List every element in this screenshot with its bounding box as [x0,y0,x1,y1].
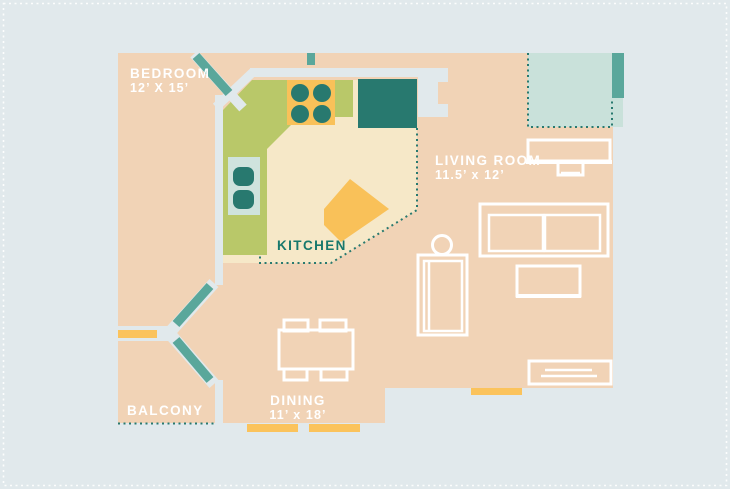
terrace [528,53,623,127]
floor-plan: BEDROOM 12’ X 15’ LIVING ROOM 11.5’ x 12… [0,0,730,489]
wall-kitchen-top [250,68,418,77]
window-dining-1 [247,424,298,432]
bedroom-dims: 12’ X 15’ [130,81,189,95]
bedroom-label: BEDROOM [130,66,210,81]
burner [291,105,309,123]
living-room-dims: 11.5’ x 12’ [435,168,505,182]
window-dining-2 [309,424,360,432]
wall-bedroom-right [215,95,223,285]
front-door [307,53,315,65]
fridge [358,79,417,128]
floor-plan-svg: BEDROOM 12’ X 15’ LIVING ROOM 11.5’ x 12… [0,0,730,489]
kitchen-label: KITCHEN [277,238,347,253]
dining-dims: 11’ x 18’ [269,408,326,422]
balcony-label: BALCONY [127,403,204,418]
window-left [118,330,157,338]
burner [291,84,309,102]
living-room-label: LIVING ROOM [435,153,541,168]
dining-label: DINING [270,393,326,408]
wall-entry-arm-bottom [436,104,448,117]
burner [313,105,331,123]
burner [313,84,331,102]
wall-entry-arm-top [438,68,448,82]
window-living [471,388,522,395]
wall-balcony-right [215,380,223,423]
wall-entry-vertical [418,68,438,117]
sink-basin [233,167,254,186]
terrace-door [612,53,624,98]
sink-basin [233,190,254,209]
